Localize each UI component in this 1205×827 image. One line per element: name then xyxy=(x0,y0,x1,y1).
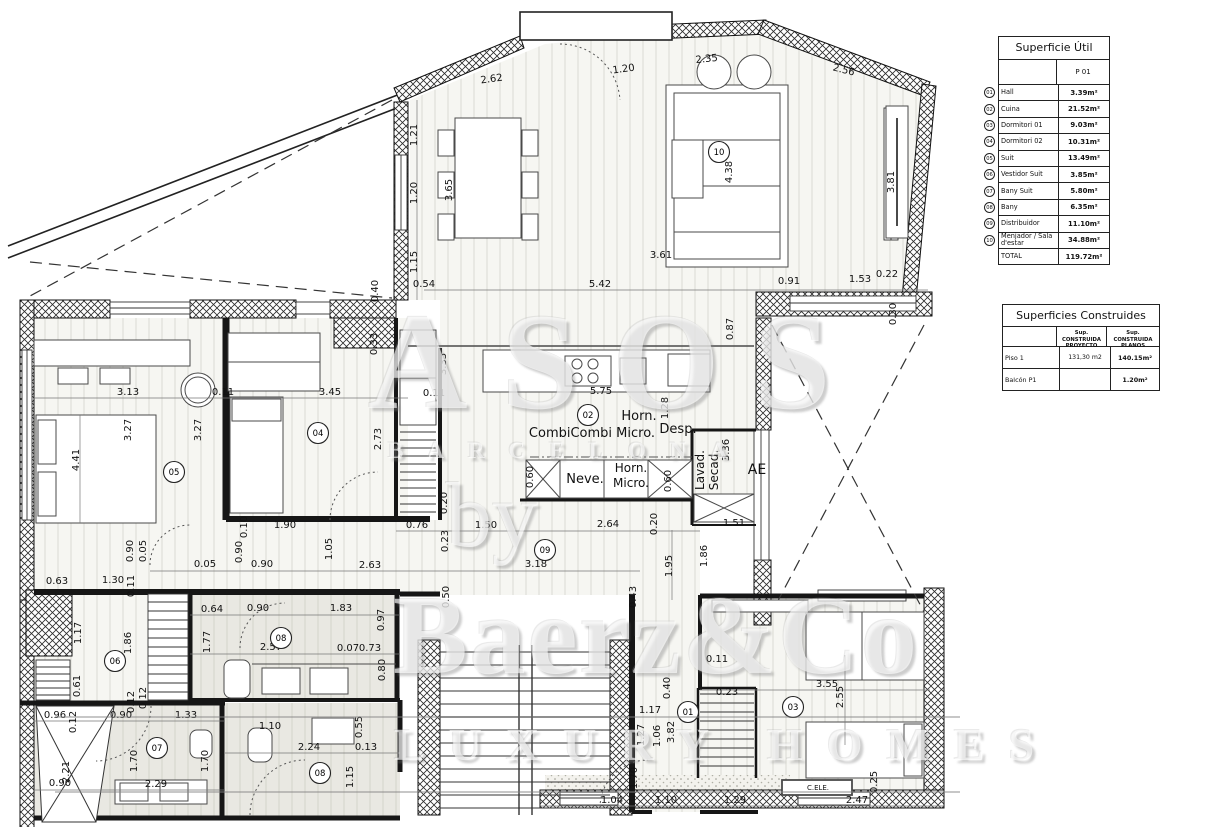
dimension-label: 0.11 xyxy=(706,654,728,665)
room-area: 9.03m² xyxy=(1059,121,1109,129)
dimension-label: 0.60 xyxy=(663,470,674,492)
room-number: 02 xyxy=(583,411,594,421)
dimension-label: 0.63 xyxy=(46,576,68,587)
dimension-label: 1.70 xyxy=(200,750,211,772)
dimension-label: 2.47 xyxy=(846,795,868,806)
dimension-label: 2.63 xyxy=(359,560,381,571)
room-number-badge: 08 xyxy=(984,202,995,213)
dimension-label: 1.27 xyxy=(636,724,647,746)
table-row: 06 Vestidor Suit 3.85m² xyxy=(999,167,1109,183)
room-name: Suit xyxy=(999,151,1059,166)
dimension-label: 1.95 xyxy=(664,555,675,577)
table-row: 07 Bany Suit 5.80m² xyxy=(999,183,1109,199)
dimension-label: 0.05 xyxy=(138,540,149,562)
dimension-label: 0.11 xyxy=(423,388,445,399)
table-row: 08 Bany 6.35m² xyxy=(999,200,1109,216)
dimension-label: 0.33 xyxy=(369,333,380,355)
dimension-label: 1.28 xyxy=(660,397,671,419)
dimension-label: 0.96 xyxy=(44,710,66,721)
dimension-label: 1.70 xyxy=(629,767,640,789)
dimension-label: 1.06 xyxy=(652,725,663,747)
dimension-label: 1.33 xyxy=(175,710,197,721)
dimension-label: 0.10 xyxy=(239,516,250,538)
dimension-label: 0.22 xyxy=(876,269,898,280)
dimension-label: 0.40 xyxy=(370,280,381,302)
room-area: 6.35m² xyxy=(1059,203,1109,211)
fixture-label: CombiCombi Micro. xyxy=(529,426,655,441)
dimension-label: 0.54 xyxy=(413,279,435,290)
room-name: Distribuidor xyxy=(999,216,1059,231)
dimension-label: 0.23 xyxy=(440,530,451,552)
dimension-label: 1.21 xyxy=(409,124,420,146)
dimension-label: 0.20 xyxy=(439,492,450,514)
dimension-label: 0.87 xyxy=(725,318,736,340)
column-header-planos: Sup. CONSTRUIDA PLANOS xyxy=(1107,327,1159,346)
column-header-p01: P 01 xyxy=(1057,60,1109,84)
fixture-label: Neve. xyxy=(566,472,604,487)
dimension-label: 1.05 xyxy=(324,538,335,560)
dimension-label: 3.35 xyxy=(438,353,449,375)
table-row: Piso 1 131,30 m2 140.15m² xyxy=(1003,347,1159,369)
dimension-label: 0.76 xyxy=(406,520,428,531)
dimension-label: 0.80 xyxy=(377,659,388,681)
room-area: 5.80m² xyxy=(1059,187,1109,195)
table-superficie-util-subheader: P 01 xyxy=(999,60,1109,85)
dimension-label: 1.17 xyxy=(639,705,661,716)
room-number: 07 xyxy=(152,744,163,754)
dimension-label: 2.55 xyxy=(835,686,846,708)
dimension-label: 0.12 xyxy=(138,687,149,709)
table-row: 02 Cuina 21.52m² xyxy=(999,101,1109,117)
table-row: 01 Hall 3.39m² xyxy=(999,85,1109,101)
balcony-x-right xyxy=(772,325,924,612)
room-number: 05 xyxy=(169,468,180,478)
dimension-label: 1.29 xyxy=(724,795,746,806)
room-area: 21.52m² xyxy=(1059,105,1109,113)
table-superficie-util-rows: 01 Hall 3.39m²02 Cuina 21.52m²03 Dormito… xyxy=(999,85,1109,264)
room-name: Bany Suit xyxy=(999,183,1059,198)
dimension-label: 5.42 xyxy=(589,279,611,290)
roof-edge-lines xyxy=(8,94,402,258)
table-row: 03 Dormitori 01 9.03m² xyxy=(999,118,1109,134)
room-number-badge: 02 xyxy=(984,104,995,115)
dimension-label: 3.65 xyxy=(444,179,455,201)
dimension-label: 0.23 xyxy=(716,687,738,698)
dimension-label: 0.20 xyxy=(649,513,660,535)
table-row: 10 Menjador / Sala d'estar 34.88m² xyxy=(999,233,1109,249)
dimension-label: 3.45 xyxy=(319,387,341,398)
dimension-label: 0.12 xyxy=(68,711,79,733)
dimension-label: 3.61 xyxy=(650,250,672,261)
dimension-label: 0.61 xyxy=(72,675,83,697)
dimension-label: 0.43 xyxy=(628,586,639,608)
table-superficies-construides-title: Superficies Construides xyxy=(1003,305,1159,327)
dimension-label: 0.40 xyxy=(662,677,673,699)
dimension-label: 1.10 xyxy=(259,721,281,732)
room-number-badge: 03 xyxy=(984,120,995,131)
construida-proyecto xyxy=(1060,369,1111,390)
room-area: 11.10m² xyxy=(1059,220,1109,228)
fixture-label: Micro. xyxy=(613,476,649,490)
dimension-label: 2.35 xyxy=(695,53,718,66)
room-name: Hall xyxy=(999,85,1059,100)
room-number-badge: 05 xyxy=(984,153,995,164)
dimension-label: 0.90 xyxy=(234,541,245,563)
column-header-proyecto: Sup. CONSTRUIDA PROYECTO xyxy=(1057,327,1107,346)
dimension-label: 0.90 xyxy=(247,603,269,614)
total-label: TOTAL xyxy=(999,249,1059,264)
dimension-label: 0.90 xyxy=(110,710,132,721)
room-number: 01 xyxy=(683,708,694,718)
room-number: 06 xyxy=(110,657,121,667)
dimension-label: 0.25 xyxy=(869,771,880,793)
dimension-label: 5.75 xyxy=(590,386,612,397)
dimension-label: 1.15 xyxy=(345,766,356,788)
fixture-label: Lavad. xyxy=(693,450,707,490)
dimension-label: 0.90 xyxy=(125,540,136,562)
dimension-label: 0.13 xyxy=(355,742,377,753)
table-row: 04 Dormitori 02 10.31m² xyxy=(999,134,1109,150)
dimension-label: 0.50 xyxy=(441,586,452,608)
dimension-label: 0.05 xyxy=(194,559,216,570)
room-number-badge: 10 xyxy=(984,235,995,246)
fixture-label: Horn. xyxy=(615,461,648,475)
dimension-label: 1.53 xyxy=(849,274,871,285)
construida-name: Piso 1 xyxy=(1003,347,1060,368)
construida-planos: 140.15m² xyxy=(1111,354,1159,362)
room-number: 03 xyxy=(788,703,799,713)
dimension-label: 3.36 xyxy=(721,439,732,461)
fixture-label: Desp. xyxy=(659,422,696,437)
dimension-label: 1.17 xyxy=(73,622,84,644)
dimension-label: 2.64 xyxy=(597,519,619,530)
room-number: 08 xyxy=(276,634,287,644)
table-row: Balcón P1 1.20m² xyxy=(1003,369,1159,390)
room-number: 04 xyxy=(313,429,324,439)
dimension-label: 3.27 xyxy=(123,419,134,441)
skylight-protrusion xyxy=(520,12,672,40)
dimension-label: 1.86 xyxy=(699,545,710,567)
construida-name: Balcón P1 xyxy=(1003,369,1060,390)
dimension-label: 1.15 xyxy=(409,251,420,273)
fixture-label: C.ELE. xyxy=(807,784,829,792)
dimension-label: 3.82 xyxy=(666,721,677,743)
dimension-label: 1.70 xyxy=(129,750,140,772)
dimension-label: 1.04 xyxy=(601,795,623,806)
dimension-label: 3.81 xyxy=(886,171,897,193)
dimension-label: 0.90 xyxy=(251,559,273,570)
fixture-label: AE xyxy=(748,462,766,478)
dimension-label: 0.11 xyxy=(126,575,137,597)
table-superficie-util-title: Superficie Útil xyxy=(999,37,1109,60)
table-superficies-construides: Superficies Construides Sup. CONSTRUIDA … xyxy=(1002,304,1160,391)
dimension-label: 1.10 xyxy=(655,795,677,806)
room-name: Menjador / Sala d'estar xyxy=(999,233,1059,248)
table-row: 05 Suit 13.49m² xyxy=(999,151,1109,167)
table-row: 09 Distribuidor 11.10m² xyxy=(999,216,1109,232)
dimension-label: 2.24 xyxy=(298,742,320,753)
room-name: Bany xyxy=(999,200,1059,215)
dimension-label: 0.90 xyxy=(49,778,71,789)
table-total-row: TOTAL 119.72m² xyxy=(999,249,1109,264)
construida-proyecto: 131,30 m2 xyxy=(1060,347,1111,368)
dimension-label: 3.27 xyxy=(193,419,204,441)
dimension-label: 1.51 xyxy=(723,518,745,529)
room-area: 13.49m² xyxy=(1059,154,1109,162)
room-area: 10.31m² xyxy=(1059,138,1109,146)
dimension-label: 1.30 xyxy=(102,575,124,586)
room-name: Cuina xyxy=(999,101,1059,116)
room-area: 34.88m² xyxy=(1059,236,1109,244)
dimension-label: 0.07 xyxy=(337,643,359,654)
dimension-label: 0.55 xyxy=(354,716,365,738)
room-area: 3.39m² xyxy=(1059,89,1109,97)
dimension-label: 4.38 xyxy=(724,161,735,183)
dimension-label: 3.13 xyxy=(117,387,139,398)
floor-plan-sheet: 2.621.202.352.561.211.201.150.545.423.65… xyxy=(0,0,1205,827)
dimension-label: 2.29 xyxy=(145,779,167,790)
room-name: Vestidor Suit xyxy=(999,167,1059,182)
terrace-x-top-left xyxy=(30,100,392,298)
table-superficie-util: Superficie Útil P 01 01 Hall 3.39m²02 Cu… xyxy=(998,36,1110,265)
room-number-badge: 07 xyxy=(984,186,995,197)
room-name: Dormitori 01 xyxy=(999,118,1059,133)
dimension-label: 1.20 xyxy=(409,182,420,204)
fixture-label: Secad. xyxy=(707,450,721,490)
dimension-label: 0.97 xyxy=(376,609,387,631)
fixture-label: Horn. xyxy=(621,409,656,424)
room-number: 08 xyxy=(315,769,326,779)
dimension-label: 4.41 xyxy=(71,449,82,471)
dimension-label: 1.86 xyxy=(123,632,134,654)
table-superficies-construides-header: Sup. CONSTRUIDA PROYECTO Sup. CONSTRUIDA… xyxy=(1003,327,1159,347)
dimension-label: 1.83 xyxy=(330,603,352,614)
total-value: 119.72m² xyxy=(1059,253,1109,261)
dimension-label: 1.50 xyxy=(475,520,497,531)
construida-planos: 1.20m² xyxy=(1111,376,1159,384)
dimension-label: 2.73 xyxy=(373,428,384,450)
dimension-label: 1.90 xyxy=(274,520,296,531)
table-superficies-construides-rows: Piso 1 131,30 m2 140.15m²Balcón P1 1.20m… xyxy=(1003,347,1159,390)
dimension-label: 0.91 xyxy=(778,276,800,287)
room-number: 09 xyxy=(540,546,551,556)
dimension-label: 0.60 xyxy=(525,466,536,488)
dimension-label: 0.73 xyxy=(359,643,381,654)
dimension-label: 0.30 xyxy=(888,303,899,325)
dimension-label: 0.64 xyxy=(201,604,223,615)
dimension-label: 1.77 xyxy=(202,631,213,653)
room-name: Dormitori 02 xyxy=(999,134,1059,149)
room-number: 10 xyxy=(714,148,725,158)
dimension-label: 0.11 xyxy=(212,387,234,398)
room-area: 3.85m² xyxy=(1059,171,1109,179)
